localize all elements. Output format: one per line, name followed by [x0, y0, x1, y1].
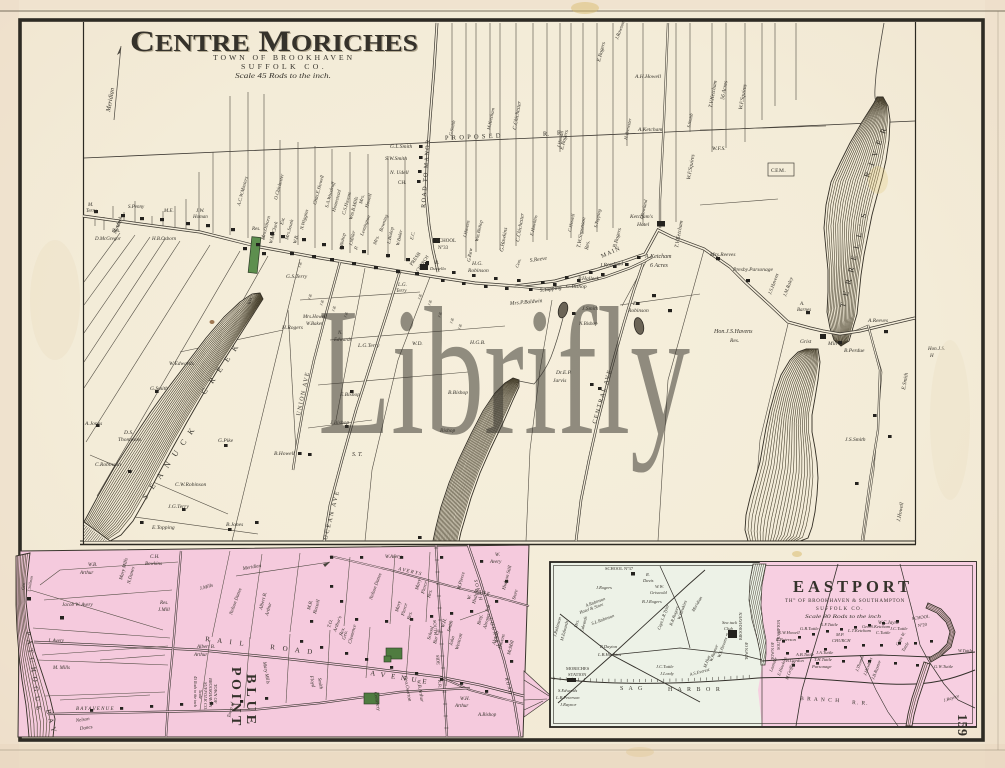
- svg-text:W.F.S.: W.F.S.: [712, 146, 726, 152]
- svg-text:S A G: S A G: [620, 686, 644, 692]
- svg-text:A.Bishop: A.Bishop: [477, 713, 497, 718]
- svg-text:J.Lordy: J.Lordy: [660, 671, 674, 676]
- svg-text:Res.: Res.: [251, 227, 260, 232]
- svg-text:S.Edwards: S.Edwards: [558, 688, 577, 693]
- svg-text:Homan: Homan: [192, 215, 208, 220]
- svg-text:Nº33: Nº33: [438, 245, 449, 251]
- svg-text:Librifly: Librifly: [318, 270, 690, 473]
- svg-text:H.B.Osborn: H.B.Osborn: [151, 237, 177, 242]
- svg-text:J.Raynor: J.Raynor: [560, 702, 577, 707]
- svg-text:B.Jones: B.Jones: [226, 522, 243, 528]
- svg-text:CHURCH: CHURCH: [832, 638, 851, 643]
- svg-text:W.Avery: W.Avery: [385, 555, 402, 560]
- svg-text:Ketcham's: Ketcham's: [629, 214, 653, 220]
- svg-text:H.Rogers: H.Rogers: [281, 325, 303, 331]
- svg-text:M.E.: M.E.: [163, 209, 174, 214]
- svg-text:R. R.: R. R.: [852, 700, 869, 707]
- svg-text:Sea tuck: Sea tuck: [722, 620, 738, 625]
- svg-text:SUFFOLK CO.: SUFFOLK CO.: [241, 63, 327, 71]
- svg-text:EASTPORT: EASTPORT: [793, 577, 913, 596]
- svg-text:G.B.Tuttle: G.B.Tuttle: [800, 626, 819, 631]
- svg-text:N.W.Howell: N.W.Howell: [777, 630, 800, 635]
- svg-text:Terry: Terry: [86, 209, 97, 214]
- svg-text:J.C.Tuttle: J.C.Tuttle: [656, 664, 674, 669]
- svg-text:BLUE: BLUE: [243, 674, 258, 728]
- svg-text:J.A.Tuttle: J.A.Tuttle: [816, 650, 833, 655]
- svg-text:J.G.Terry: J.G.Terry: [168, 504, 189, 510]
- svg-text:S.W.Smith: S.W.Smith: [385, 156, 407, 162]
- svg-text:Grist: Grist: [800, 339, 812, 345]
- svg-text:A.Ketcham: A.Ketcham: [644, 254, 672, 260]
- svg-text:L.B.Hawkins: L.B.Hawkins: [597, 652, 622, 657]
- svg-text:G.W.Tuttle: G.W.Tuttle: [934, 664, 953, 669]
- svg-text:B A Y A V E N U E: B A Y A V E N U E: [76, 707, 114, 712]
- svg-text:Hotel: Hotel: [636, 222, 650, 228]
- svg-text:B.Howell: B.Howell: [274, 451, 295, 457]
- svg-text:STATION: STATION: [568, 672, 587, 677]
- svg-text:A.B.Tuttle: A.B.Tuttle: [795, 652, 814, 657]
- svg-text:Arthur: Arthur: [454, 704, 468, 709]
- svg-text:L.B.Peterson: L.B.Peterson: [555, 695, 580, 700]
- svg-text:Res.: Res.: [729, 338, 739, 344]
- svg-text:R.: R.: [543, 131, 550, 138]
- svg-text:SCHOOL Nº37: SCHOOL Nº37: [605, 566, 634, 571]
- svg-text:A.H.Howell: A.H.Howell: [634, 74, 661, 80]
- svg-text:B.Perdue: B.Perdue: [844, 348, 865, 354]
- svg-text:Hon.J.S.Havens: Hon.J.S.Havens: [713, 329, 753, 335]
- svg-text:Mill: Mill: [827, 341, 838, 347]
- svg-text:W.Edwards: W.Edwards: [169, 361, 194, 367]
- svg-text:W.W.: W.W.: [655, 584, 664, 589]
- svg-text:W.Tuttle: W.Tuttle: [958, 648, 973, 653]
- svg-text:G.L.Smith: G.L.Smith: [390, 144, 413, 150]
- svg-text:Barnes: Barnes: [797, 308, 811, 313]
- svg-text:H: H: [929, 354, 934, 359]
- svg-text:45 Rods to the inch: 45 Rods to the inch: [193, 676, 198, 707]
- svg-text:CEM.: CEM.: [771, 168, 786, 174]
- svg-text:D.McGregor: D.McGregor: [94, 237, 121, 242]
- svg-text:J. Avery: J. Avery: [48, 639, 65, 644]
- svg-text:C.H.: C.H.: [150, 555, 159, 560]
- svg-text:A.Jones: A.Jones: [84, 421, 102, 427]
- svg-text:Davis: Davis: [642, 578, 654, 583]
- svg-text:M.: M.: [87, 203, 93, 208]
- svg-text:SUFFOLK CO.: SUFFOLK CO.: [816, 607, 864, 612]
- svg-text:SCHOOL: SCHOOL: [436, 239, 456, 244]
- svg-text:Res.: Res.: [159, 601, 168, 606]
- svg-text:B.J.Rogers: B.J.Rogers: [642, 599, 662, 604]
- svg-text:G.F.Tuttle: G.F.Tuttle: [820, 622, 838, 627]
- svg-text:J.S.Smith: J.S.Smith: [845, 437, 866, 443]
- svg-text:M. Mills: M. Mills: [52, 666, 70, 671]
- svg-text:H.G.: H.G.: [471, 261, 483, 267]
- svg-text:J.W.: J.W.: [196, 209, 204, 214]
- svg-text:R.: R.: [645, 572, 650, 577]
- svg-text:W.H.: W.H.: [460, 697, 470, 702]
- svg-text:C.W.Robinson: C.W.Robinson: [175, 482, 207, 488]
- svg-text:6 Acres: 6 Acres: [650, 263, 668, 269]
- svg-text:C.Tuttle: C.Tuttle: [876, 630, 890, 635]
- svg-text:Thompson: Thompson: [118, 437, 141, 443]
- svg-text:E.Topping: E.Topping: [151, 525, 175, 531]
- svg-text:W.B.: W.B.: [88, 563, 97, 568]
- svg-text:H A R B O R: H A R B O R: [668, 687, 722, 693]
- svg-text:T.H.Tuttle: T.H.Tuttle: [814, 657, 832, 662]
- svg-text:R.R.: R.R.: [437, 680, 443, 689]
- svg-text:Avery: Avery: [489, 560, 502, 565]
- svg-text:R.Peterson: R.Peterson: [775, 637, 797, 642]
- svg-text:D.S.: D.S.: [123, 430, 133, 436]
- svg-text:Griswold: Griswold: [650, 590, 668, 595]
- svg-text:Parsonage: Parsonage: [811, 664, 832, 669]
- svg-text:Scale 80 Rods to the inch: Scale 80 Rods to the inch: [805, 614, 881, 620]
- svg-text:Albert B.: Albert B.: [196, 645, 215, 650]
- svg-text:CH.: CH.: [398, 181, 406, 186]
- svg-text:G.S.Terry: G.S.Terry: [286, 274, 308, 280]
- svg-text:B.Dayton: B.Dayton: [600, 644, 618, 649]
- svg-text:M.P.: M.P.: [835, 632, 844, 637]
- svg-text:SIDE: SIDE: [435, 655, 441, 666]
- svg-text:Bowkins: Bowkins: [145, 562, 162, 567]
- svg-text:POINT: POINT: [228, 667, 243, 729]
- svg-text:Jacob W. Avery: Jacob W. Avery: [62, 603, 93, 608]
- svg-text:A.: A.: [799, 302, 804, 307]
- svg-text:J.C.Tuttle: J.C.Tuttle: [890, 626, 908, 631]
- svg-text:A.Reeves: A.Reeves: [867, 318, 888, 324]
- svg-text:Scale 45 Rods to the inch.: Scale 45 Rods to the inch.: [235, 71, 331, 80]
- svg-text:BROOKHAVEN: BROOKHAVEN: [738, 612, 743, 640]
- svg-text:MORICHES: MORICHES: [566, 666, 590, 671]
- svg-text:C.Robinson: C.Robinson: [95, 462, 121, 468]
- svg-text:Arthur: Arthur: [193, 653, 207, 658]
- svg-text:S.Penny: S.Penny: [128, 205, 145, 210]
- svg-text:J.Rogers: J.Rogers: [596, 585, 612, 590]
- svg-text:J.Mill: J.Mill: [158, 608, 170, 613]
- svg-text:W.: W.: [495, 553, 500, 558]
- svg-text:TOWN OF: TOWN OF: [744, 641, 749, 660]
- svg-text:N. Udell: N. Udell: [389, 170, 409, 176]
- svg-text:Presby.Parsonage: Presby.Parsonage: [732, 267, 774, 273]
- svg-text:TOWN OF BROOKHAVEN: TOWN OF BROOKHAVEN: [213, 54, 355, 62]
- svg-text:G.Pike: G.Pike: [218, 438, 234, 444]
- svg-text:159: 159: [954, 714, 969, 737]
- svg-text:A.Ketcham: A.Ketcham: [637, 127, 662, 133]
- svg-text:G.Smith: G.Smith: [150, 386, 168, 392]
- svg-text:Arthur: Arthur: [79, 571, 93, 576]
- svg-text:Geo.S.Ketcham: Geo.S.Ketcham: [862, 624, 891, 629]
- svg-text:TH‟ OF BROOKHAVEN & SOUTHAMPTO: TH‟ OF BROOKHAVEN & SOUTHAMPTON: [785, 599, 905, 604]
- svg-text:Mrs.Reeves: Mrs.Reeves: [709, 252, 736, 258]
